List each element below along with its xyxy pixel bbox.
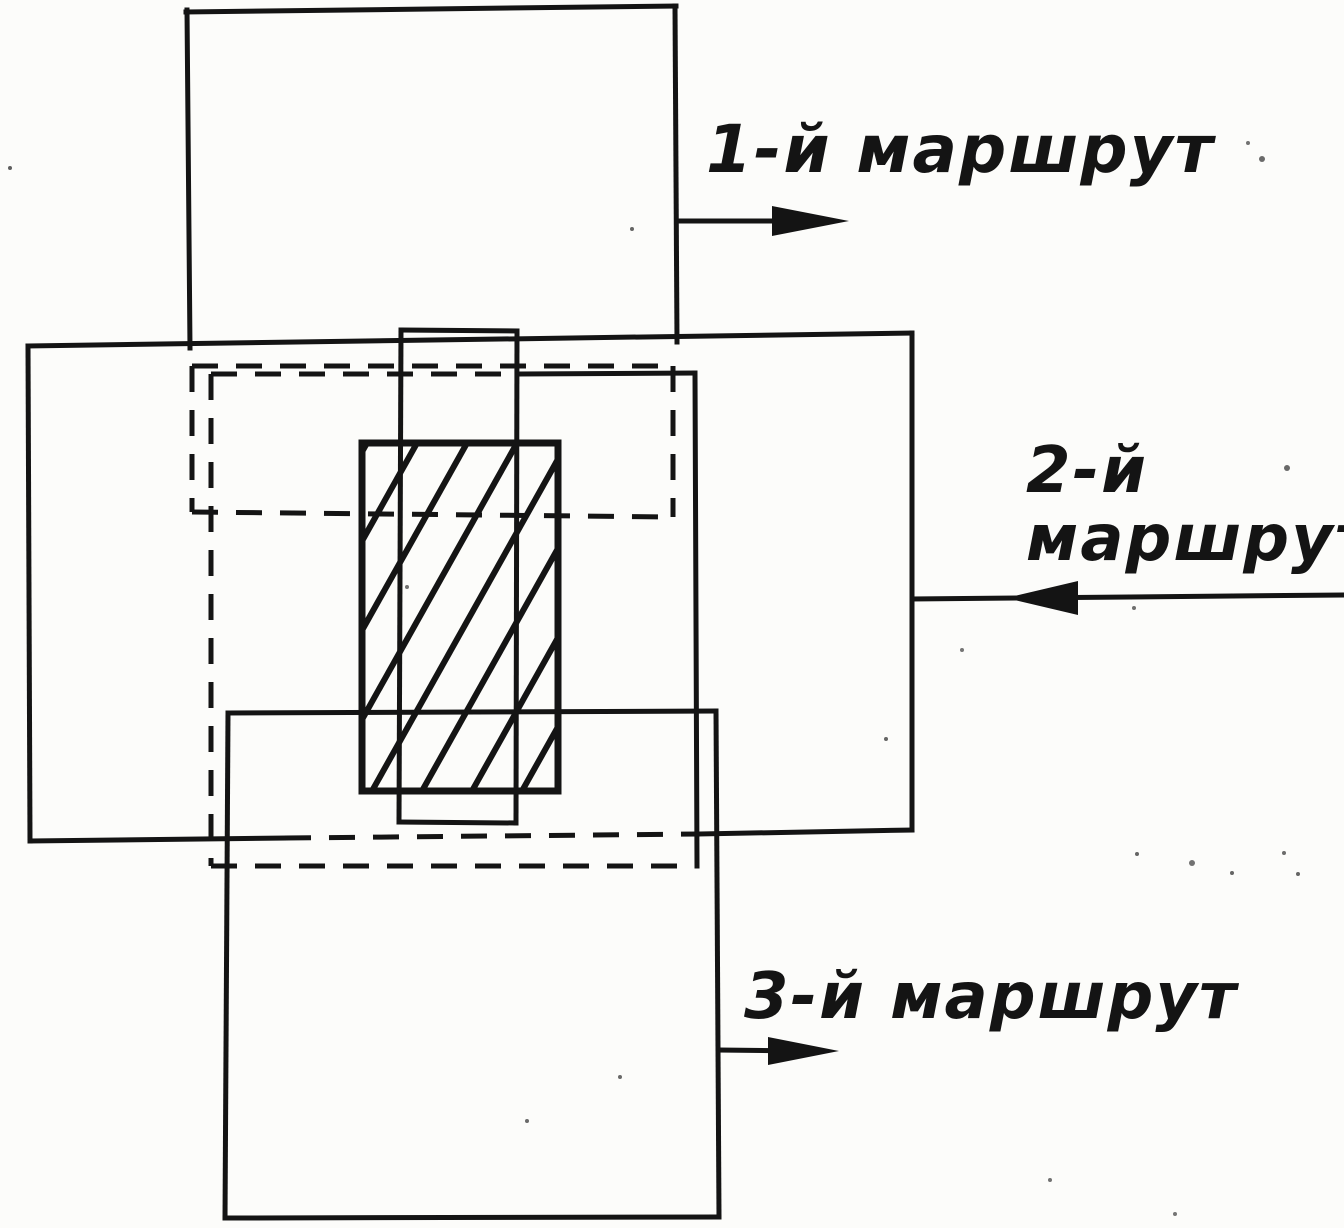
route-1-arrow	[677, 206, 849, 236]
route-3-label: 3-й маршрут	[744, 960, 1240, 1034]
route-1-label: 1-й маршрут	[706, 111, 1217, 188]
route-2-label-line2: маршрут	[1026, 502, 1344, 576]
scanned-figure: 1-й маршрут 2-й маршрут 3-й маршрут	[0, 0, 1344, 1228]
routes-overlap-diagram: 1-й маршрут 2-й маршрут 3-й маршрут	[0, 0, 1344, 1228]
route-3-arrow	[719, 1037, 839, 1065]
route-2-label-line1: 2-й	[1026, 434, 1148, 508]
route-2-arrow	[913, 581, 1344, 615]
hatched-overlap-area	[172, 443, 717, 791]
